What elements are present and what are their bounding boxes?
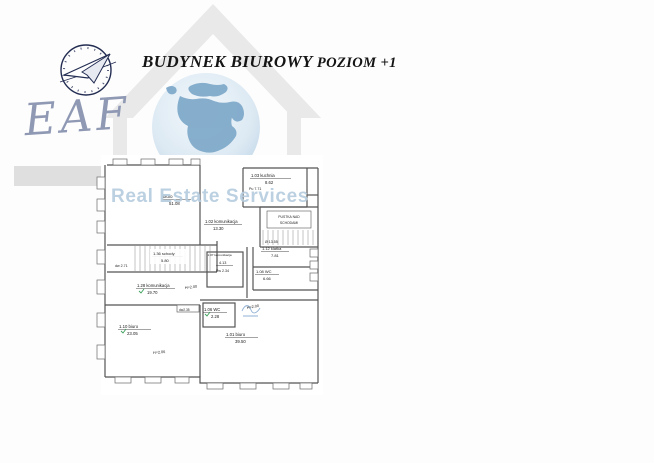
room-label: 1.36 schody (153, 251, 175, 256)
room-label: 1.08 WC (256, 269, 272, 274)
room-area: 4.13 (219, 261, 226, 265)
room-label: 1.02 komunikacja (205, 219, 238, 224)
room-area: 13.30 (213, 226, 224, 231)
room-label: 1.06 WC (204, 307, 220, 312)
room-label: 1.01 biuro (226, 332, 246, 337)
room-area: 23.05 (127, 331, 138, 336)
room-label: 1.12 klatka (262, 246, 282, 251)
room-area: 19.70 (147, 290, 158, 295)
room-label: 1.07 komunikacja (208, 253, 232, 257)
annotation-dw2: dw2.35 (179, 308, 190, 312)
room-label: 1.03 kuchnia (251, 173, 275, 178)
logo-text: EAF (22, 85, 175, 146)
room-area: 5.80 (161, 258, 170, 263)
room-label: 1.28 komunikacja (137, 283, 170, 288)
ground-band (14, 166, 102, 186)
watermark-text: Real Estate Services (111, 186, 309, 208)
room-area: 7.81 (271, 253, 280, 258)
void-label-box (267, 211, 311, 228)
room-note: Pw 2.34 (216, 269, 229, 273)
title-main: BUDYNEK BIUROWY (142, 52, 313, 71)
annotation-dw1: dw 2.71 (115, 264, 128, 268)
room-area: 2.28 (211, 314, 220, 319)
annotation-diameter: Ø 13.55 (265, 240, 278, 244)
room-area: 8.62 (265, 180, 274, 185)
room-area: 39.50 (235, 339, 246, 344)
room-label: 1.10 biuro (119, 324, 139, 329)
void-label-line2: SCHODAMI (280, 221, 298, 225)
title-sub: POZIOM +1 (317, 55, 397, 71)
void-label-line1: PUSTKA NAD (278, 215, 300, 219)
listing-image: biuro 51.08 1.03 kuchnia 8.62 Pu 7.71 PU… (0, 0, 654, 463)
room-area: 6.66 (263, 276, 272, 281)
page-title: BUDYNEK BIUROWY POZIOM +1 (142, 52, 397, 72)
